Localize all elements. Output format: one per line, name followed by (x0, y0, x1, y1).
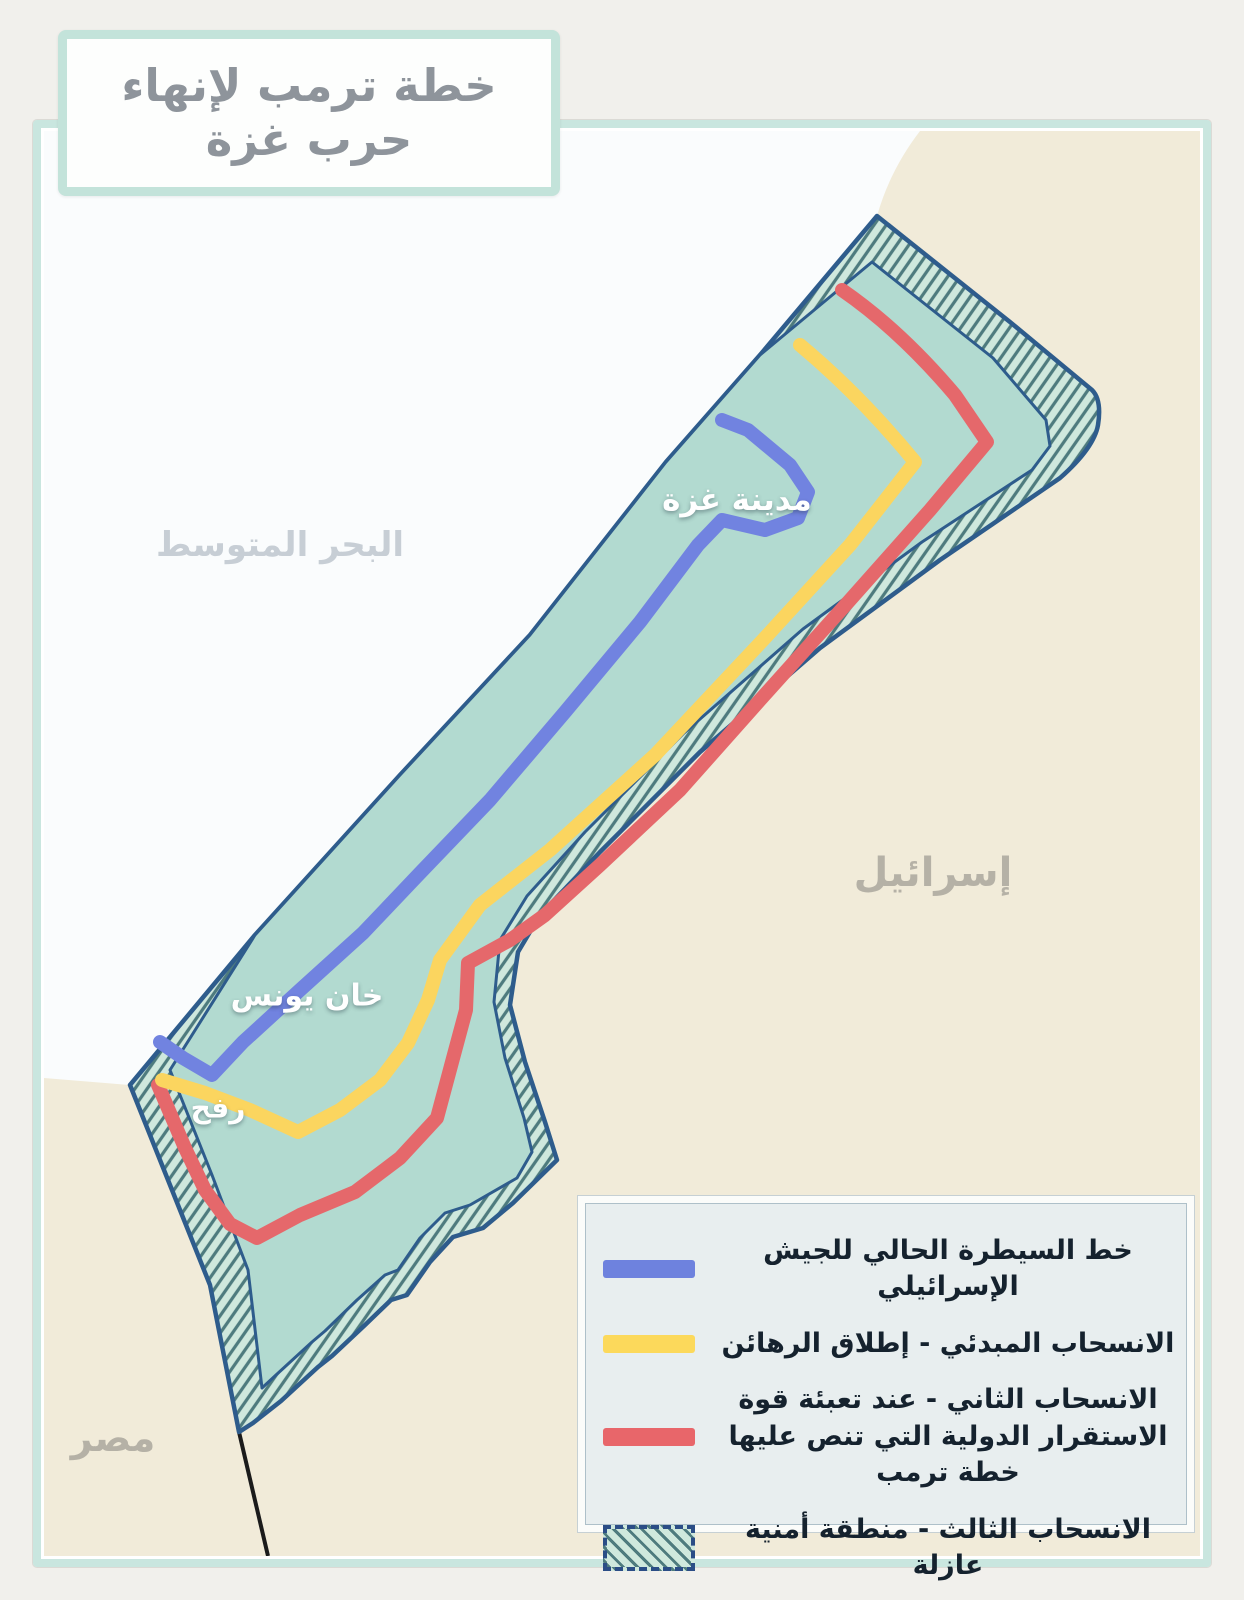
red-line-swatch (603, 1428, 695, 1446)
gaza-city-label: مدينة غزة (662, 482, 812, 518)
blue-line-swatch (603, 1260, 695, 1278)
hatched-area-swatch (603, 1525, 695, 1571)
legend-item-third-withdrawal: الانسحاب الثالث - منطقة أمنية عازلة (603, 1512, 1175, 1585)
legend-label: خط السيطرة الحالي للجيش الإسرائيلي (721, 1233, 1175, 1306)
legend-item-initial-withdrawal: الانسحاب المبدئي - إطلاق الرهائن (603, 1326, 1175, 1362)
khan-younis-label: خان يونس (231, 979, 384, 1014)
page-title: خطة ترمب لإنهاء حرب غزة (67, 59, 551, 167)
legend-label: الانسحاب المبدئي - إطلاق الرهائن (721, 1326, 1175, 1362)
israel-label: إسرائيل (854, 850, 1013, 896)
yellow-line-swatch (603, 1335, 695, 1353)
egypt-label: مصر (71, 1416, 156, 1460)
legend-label: الانسحاب الثاني - عند تعبئة قوة الاستقرا… (721, 1382, 1175, 1491)
legend-label: الانسحاب الثالث - منطقة أمنية عازلة (721, 1512, 1175, 1585)
title-box: خطة ترمب لإنهاء حرب غزة (58, 30, 560, 196)
legend-item-israeli-control: خط السيطرة الحالي للجيش الإسرائيلي (603, 1233, 1175, 1306)
legend-item-second-withdrawal: الانسحاب الثاني - عند تعبئة قوة الاستقرا… (603, 1382, 1175, 1491)
map-legend: خط السيطرة الحالي للجيش الإسرائيلي الانس… (578, 1196, 1194, 1532)
rafah-label: رفح (191, 1092, 246, 1125)
mediterranean-sea-label: البحر المتوسط (156, 525, 404, 565)
infographic-page: البحر المتوسط إسرائيل مصر مدينة غزة خان … (0, 0, 1244, 1600)
